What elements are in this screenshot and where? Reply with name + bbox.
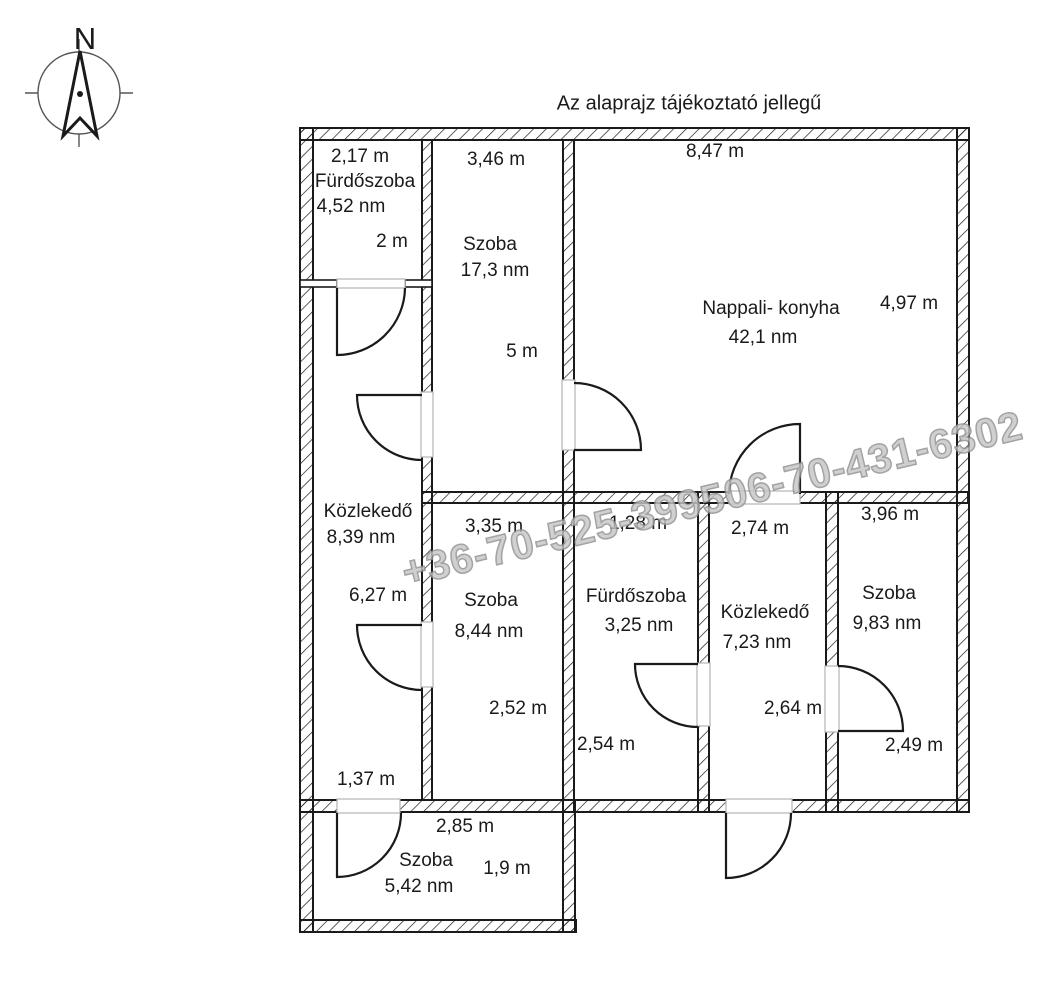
door-opening-bathroom1 bbox=[337, 279, 405, 288]
dim-kozlekedo1-height: 6,27 m bbox=[349, 585, 407, 607]
dim-szoba3-width: 3,96 m bbox=[861, 504, 919, 526]
door-opening-bathroom2 bbox=[697, 663, 710, 726]
plan-disclaimer-title: Az alaprajz tájékoztató jellegű bbox=[557, 93, 822, 116]
wall-bathroom1-partition-left bbox=[300, 280, 337, 287]
room-kozlekedo1-area: 8,39 nm bbox=[327, 527, 396, 549]
dim-kozlekedo2-width: 2,74 m bbox=[731, 518, 789, 540]
floor-plan-page: N bbox=[0, 0, 1037, 1000]
dim-szoba4-width: 2,85 m bbox=[436, 816, 494, 838]
dim-szoba4-height: 1,9 m bbox=[483, 858, 531, 880]
door-opening-entrance bbox=[726, 799, 792, 813]
door-arc-room4 bbox=[337, 813, 401, 877]
wall-outer-right bbox=[957, 128, 969, 812]
door-opening-room3 bbox=[825, 666, 839, 732]
dim-szoba3-height: 2,49 m bbox=[885, 735, 943, 757]
dim-kozlekedo1-width: 1,37 m bbox=[337, 769, 395, 791]
room-kozlekedo1-name: Közlekedő bbox=[324, 501, 413, 523]
room-nappali-area: 42,1 nm bbox=[729, 327, 798, 349]
room-kozlekedo2-name: Közlekedő bbox=[721, 602, 810, 624]
wall-bathroom1-partition-right bbox=[405, 280, 432, 287]
wall-corridor2-room3 bbox=[826, 492, 838, 812]
door-opening-livingroom-west bbox=[562, 380, 575, 450]
dim-furdoszoba-also-height: 2,54 m bbox=[577, 734, 635, 756]
room-szoba1-name: Szoba bbox=[463, 234, 517, 256]
wall-outer-top bbox=[300, 128, 969, 140]
room-szoba2-name: Szoba bbox=[464, 590, 518, 612]
room-szoba4-name: Szoba bbox=[399, 850, 453, 872]
wall-corridor-east bbox=[422, 140, 432, 800]
door-opening-room1 bbox=[421, 392, 433, 457]
room-kozlekedo2-area: 7,23 nm bbox=[723, 632, 792, 654]
room-szoba2-area: 8,44 nm bbox=[455, 621, 524, 643]
compass-center-dot bbox=[77, 91, 83, 97]
room-furdoszoba-also-name: Fürdőszoba bbox=[586, 586, 686, 608]
room-nappali-name: Nappali- konyha bbox=[702, 298, 839, 320]
door-arc-entrance bbox=[726, 813, 791, 878]
door-opening-room2 bbox=[421, 622, 433, 687]
compass-rose: N bbox=[25, 21, 133, 147]
wall-center-vertical bbox=[563, 140, 574, 812]
door-arc-room3 bbox=[838, 666, 903, 731]
compass-north-letter: N bbox=[74, 21, 96, 56]
dim-furdoszoba-felso-height: 2 m bbox=[376, 231, 408, 253]
door-arc-room2 bbox=[357, 625, 422, 690]
room-furdoszoba-felso-area: 4,52 nm bbox=[317, 196, 386, 218]
room-szoba3-name: Szoba bbox=[862, 583, 916, 605]
dim-kozlekedo2-height: 2,64 m bbox=[764, 698, 822, 720]
dim-szoba1-height: 5 m bbox=[506, 341, 538, 363]
door-opening-room4 bbox=[337, 799, 400, 813]
dim-szoba1-width: 3,46 m bbox=[467, 149, 525, 171]
door-arc-room1 bbox=[357, 395, 422, 460]
wall-bottomroom-right bbox=[563, 800, 575, 932]
room-furdoszoba-felso-name: Fürdőszoba bbox=[315, 171, 415, 193]
dim-nappali-height: 4,97 m bbox=[880, 293, 938, 315]
door-arc-bathroom1 bbox=[337, 288, 405, 355]
wall-bathroom2-corridor2 bbox=[698, 492, 709, 812]
dim-furdoszoba-felso-width: 2,17 m bbox=[331, 146, 389, 168]
room-szoba4-area: 5,42 nm bbox=[385, 876, 454, 898]
door-arc-livingroom-west bbox=[574, 383, 641, 450]
door-arc-bathroom2 bbox=[635, 664, 698, 727]
dim-szoba2-height: 2,52 m bbox=[489, 698, 547, 720]
wall-bottomroom-bottom bbox=[300, 920, 576, 932]
room-szoba1-area: 17,3 nm bbox=[461, 260, 530, 282]
room-furdoszoba-also-area: 3,25 nm bbox=[605, 615, 674, 637]
room-szoba3-area: 9,83 nm bbox=[853, 613, 922, 635]
dim-nappali-width: 8,47 m bbox=[686, 141, 744, 163]
